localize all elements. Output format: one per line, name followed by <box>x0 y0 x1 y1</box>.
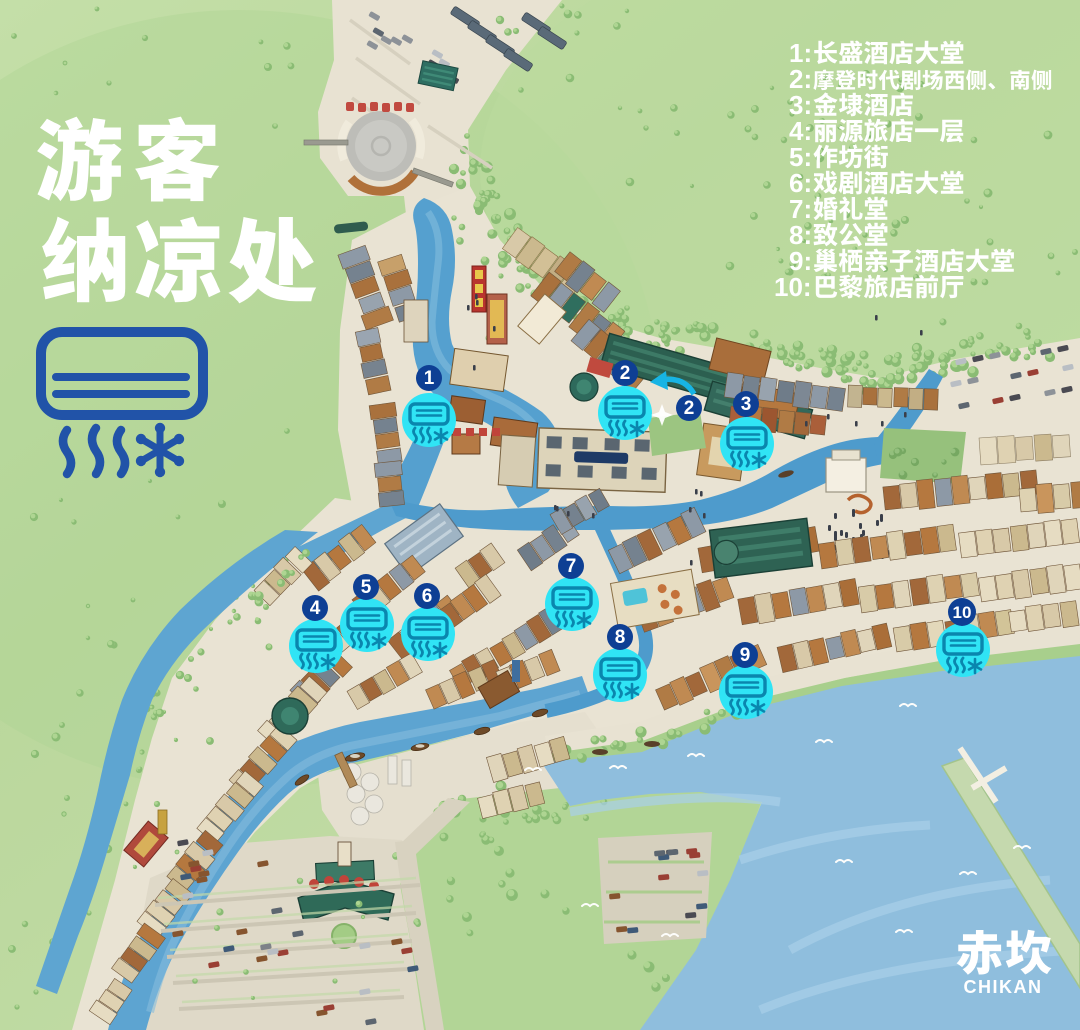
svg-text:7: 7 <box>566 556 577 577</box>
svg-text:8: 8 <box>615 627 626 648</box>
svg-text:4: 4 <box>310 598 321 619</box>
svg-text:5: 5 <box>361 577 372 598</box>
svg-text:2: 2 <box>684 398 695 419</box>
svg-text:2: 2 <box>620 363 631 384</box>
svg-text:10:: 10: <box>774 272 812 302</box>
svg-text:6: 6 <box>422 586 433 607</box>
svg-text:CHIKAN: CHIKAN <box>964 977 1043 997</box>
svg-text:3: 3 <box>741 394 752 415</box>
svg-text:9: 9 <box>740 645 751 666</box>
svg-text:10: 10 <box>953 603 972 622</box>
svg-text:1: 1 <box>424 368 435 389</box>
